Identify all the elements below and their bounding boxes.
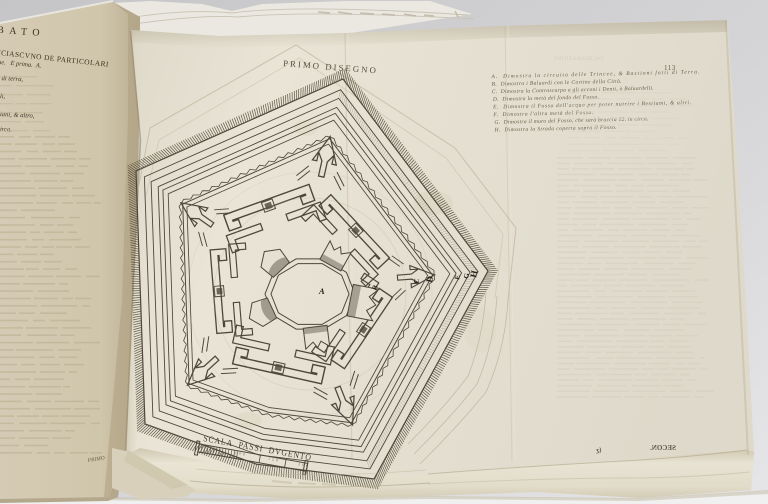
- svg-text:A: A: [318, 286, 325, 296]
- svg-text:tirca.: tirca.: [0, 126, 12, 134]
- svg-text:DICHIARAZIONE: DICHIARAZIONE: [553, 56, 603, 62]
- svg-text:ʒ}: ʒ}: [596, 447, 602, 454]
- svg-text:SECON.: SECON.: [650, 444, 676, 452]
